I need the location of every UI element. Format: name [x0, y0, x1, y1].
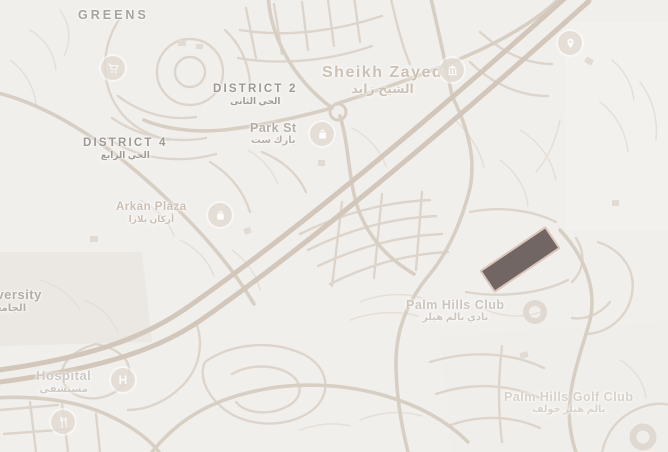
map-pin-icon[interactable] [558, 31, 582, 55]
map-canvas[interactable]: GREENS DISTRICT 2 الحي الثانى DISTRICT 4… [0, 0, 668, 452]
landmark-icon[interactable] [440, 58, 464, 82]
restaurant-icon[interactable] [51, 410, 75, 434]
shopping-bag-icon[interactable] [310, 122, 334, 146]
shopping-bag-icon[interactable] [208, 203, 232, 227]
hospital-icon[interactable]: H [111, 368, 135, 392]
shopping-cart-icon[interactable] [101, 56, 125, 80]
